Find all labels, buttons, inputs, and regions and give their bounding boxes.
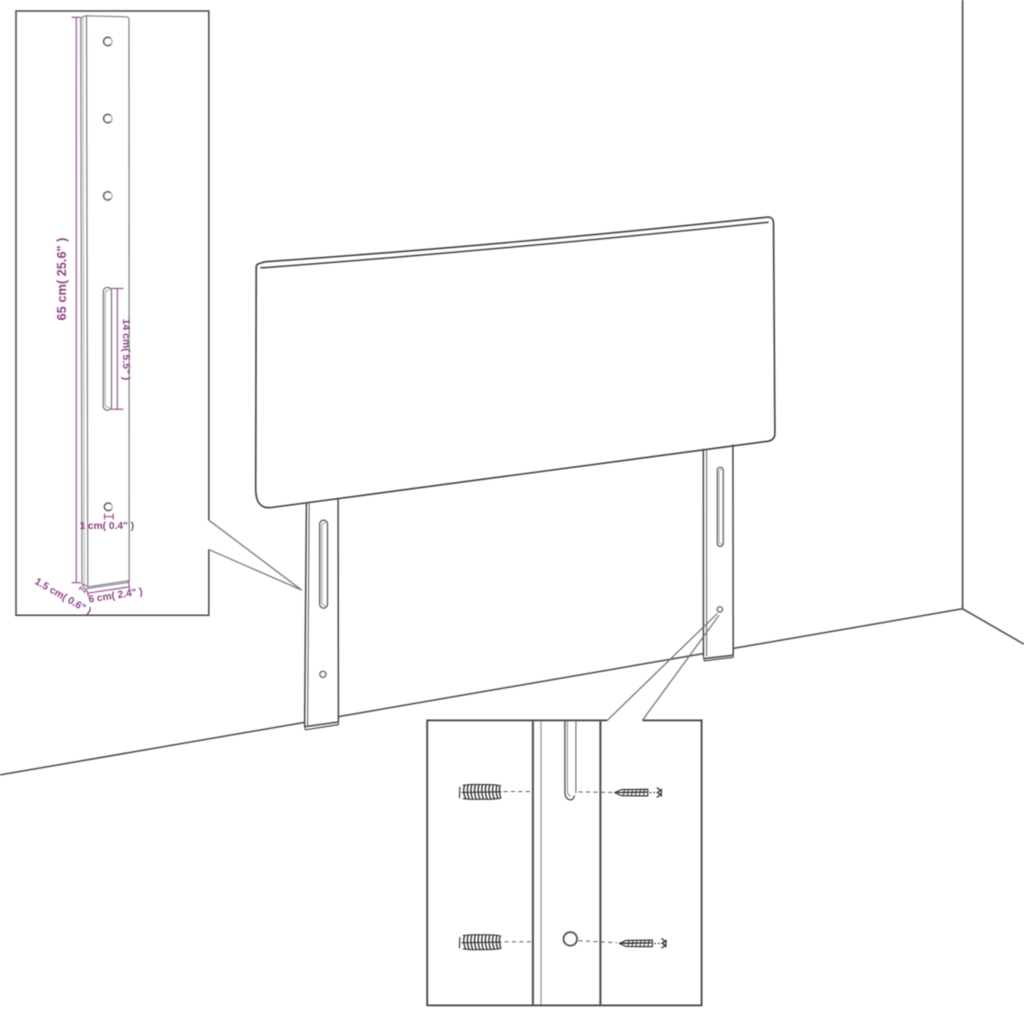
svg-text:1.5 cm( 0.6" ): 1.5 cm( 0.6" ): [33, 576, 93, 617]
svg-text:1 cm( 0.4" ): 1 cm( 0.4" ): [79, 521, 134, 532]
svg-text:14 cm( 5.5" ): 14 cm( 5.5" ): [120, 319, 131, 381]
svg-text:65 cm( 25.6" ): 65 cm( 25.6" ): [54, 238, 69, 321]
